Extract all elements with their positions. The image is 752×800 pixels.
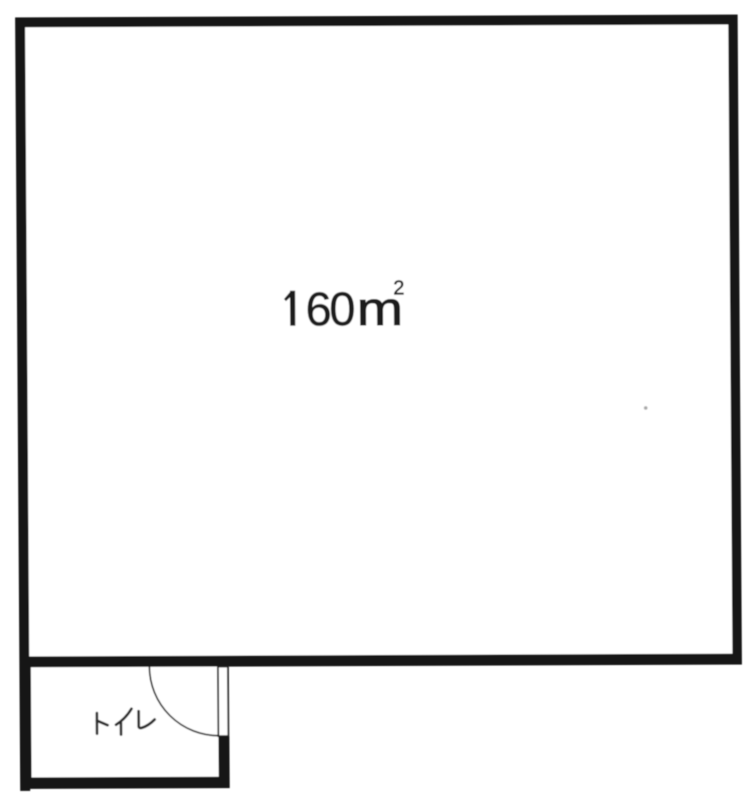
svg-text:2: 2 xyxy=(393,278,404,300)
svg-text:0: 0 xyxy=(329,282,355,335)
svg-text:6: 6 xyxy=(305,282,331,335)
